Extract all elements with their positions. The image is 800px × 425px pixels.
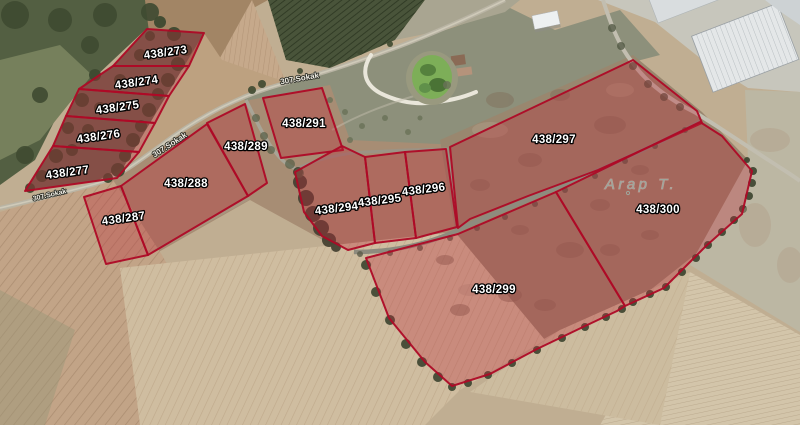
parcel-label-438-289: 438/289 [224,141,268,153]
parcel-label-438-299: 438/299 [472,284,516,296]
parcel-label-438-288: 438/288 [164,178,208,190]
parcel-label-438-300: 438/300 [636,204,680,216]
map-viewport[interactable]: 438/273438/274438/275438/276438/277438/2… [0,0,800,425]
parcel-label-438-291: 438/291 [282,118,326,130]
satellite-map[interactable]: 438/273438/274438/275438/276438/277438/2… [0,0,800,425]
round-green-feature [406,51,458,105]
parcel-label-438-297: 438/297 [532,134,576,146]
place-label: Arap T. [604,176,677,193]
